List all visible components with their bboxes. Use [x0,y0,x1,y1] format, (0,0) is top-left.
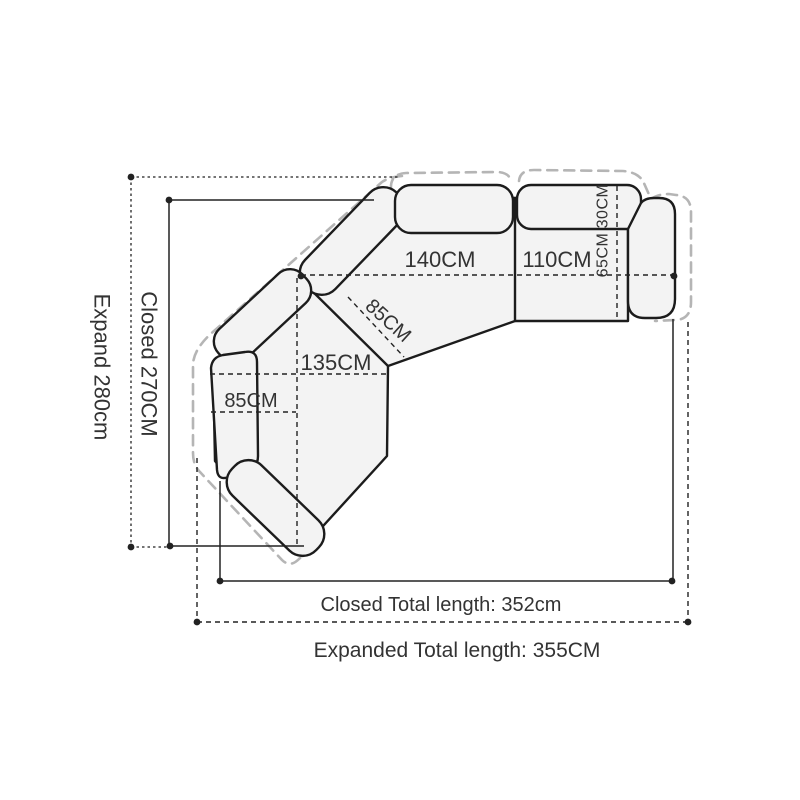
endpoint-dot [217,578,224,585]
label-seat-depth: 65CM [595,233,612,278]
label-module-110: 110CM [522,247,591,272]
endpoint-dot [685,619,692,626]
label-chaise-width: 85CM [224,390,277,412]
endpoint-dot [671,273,678,280]
endpoint-dot [128,174,135,181]
endpoint-dot [194,619,201,626]
endpoint-dot [167,543,174,550]
label-expand-depth: Expand 280cm [90,294,115,441]
endpoint-dot [298,273,305,280]
label-closed-total: Closed Total length: 352cm [321,594,562,616]
label-module-140: 140CM [405,247,476,272]
label-chaise-length: 135CM [301,350,372,375]
endpoint-dot [128,544,135,551]
back-cushion-110 [517,185,641,229]
back-cushion-140 [395,185,513,233]
label-backrest-depth: 30CM [595,184,612,229]
sofa-dimension-diagram: 140CM 110CM 30CM 65CM 135CM 85CM 85CM Cl… [0,0,800,800]
label-closed-depth: Closed 270CM [137,291,162,437]
endpoint-dot [166,197,173,204]
armrest-right [628,198,675,318]
label-expanded-total: Expanded Total length: 355CM [314,639,601,662]
endpoint-dot [669,578,676,585]
diagram-canvas: 140CM 110CM 30CM 65CM 135CM 85CM 85CM Cl… [0,0,800,800]
